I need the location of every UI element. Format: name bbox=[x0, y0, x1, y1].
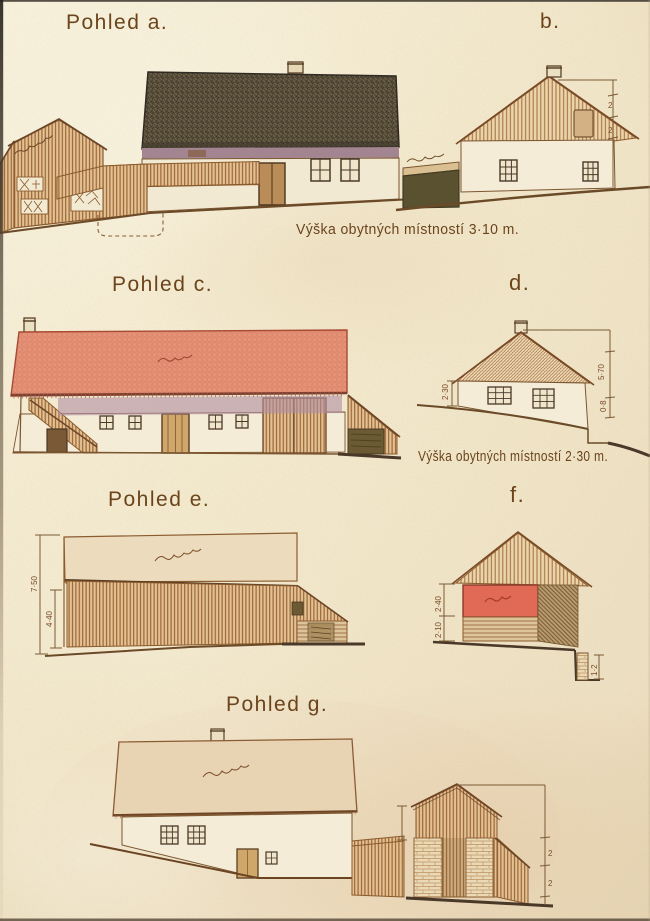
svg-text:Pohled e.: Pohled e. bbox=[108, 488, 210, 511]
svg-text:2: 2 bbox=[548, 849, 553, 858]
svg-text:2·40: 2·40 bbox=[434, 595, 443, 612]
svg-text:2: 2 bbox=[548, 879, 553, 888]
svg-text:Výška obytných místností 3·10: Výška obytných místností 3·10 m. bbox=[296, 222, 519, 238]
svg-text:1·2: 1·2 bbox=[590, 664, 599, 676]
svg-text:4·40: 4·40 bbox=[45, 610, 54, 627]
svg-text:f.: f. bbox=[510, 482, 525, 507]
svg-text:2: 2 bbox=[608, 126, 613, 135]
svg-text:Výška obytných místností 2·30: Výška obytných místností 2·30 m. bbox=[418, 449, 608, 465]
svg-text:Pohled a.: Pohled a. bbox=[66, 11, 168, 34]
svg-text:2·10: 2·10 bbox=[434, 621, 443, 638]
svg-text:7·50: 7·50 bbox=[30, 575, 39, 592]
svg-text:0·8: 0·8 bbox=[599, 400, 608, 412]
svg-text:5·70: 5·70 bbox=[597, 363, 606, 380]
svg-text:b.: b. bbox=[540, 10, 561, 33]
svg-text:Pohled g.: Pohled g. bbox=[226, 693, 328, 716]
svg-text:2: 2 bbox=[608, 101, 613, 110]
svg-text:2·30: 2·30 bbox=[441, 383, 450, 400]
svg-text:d.: d. bbox=[509, 270, 530, 295]
svg-text:Pohled c.: Pohled c. bbox=[112, 273, 213, 296]
